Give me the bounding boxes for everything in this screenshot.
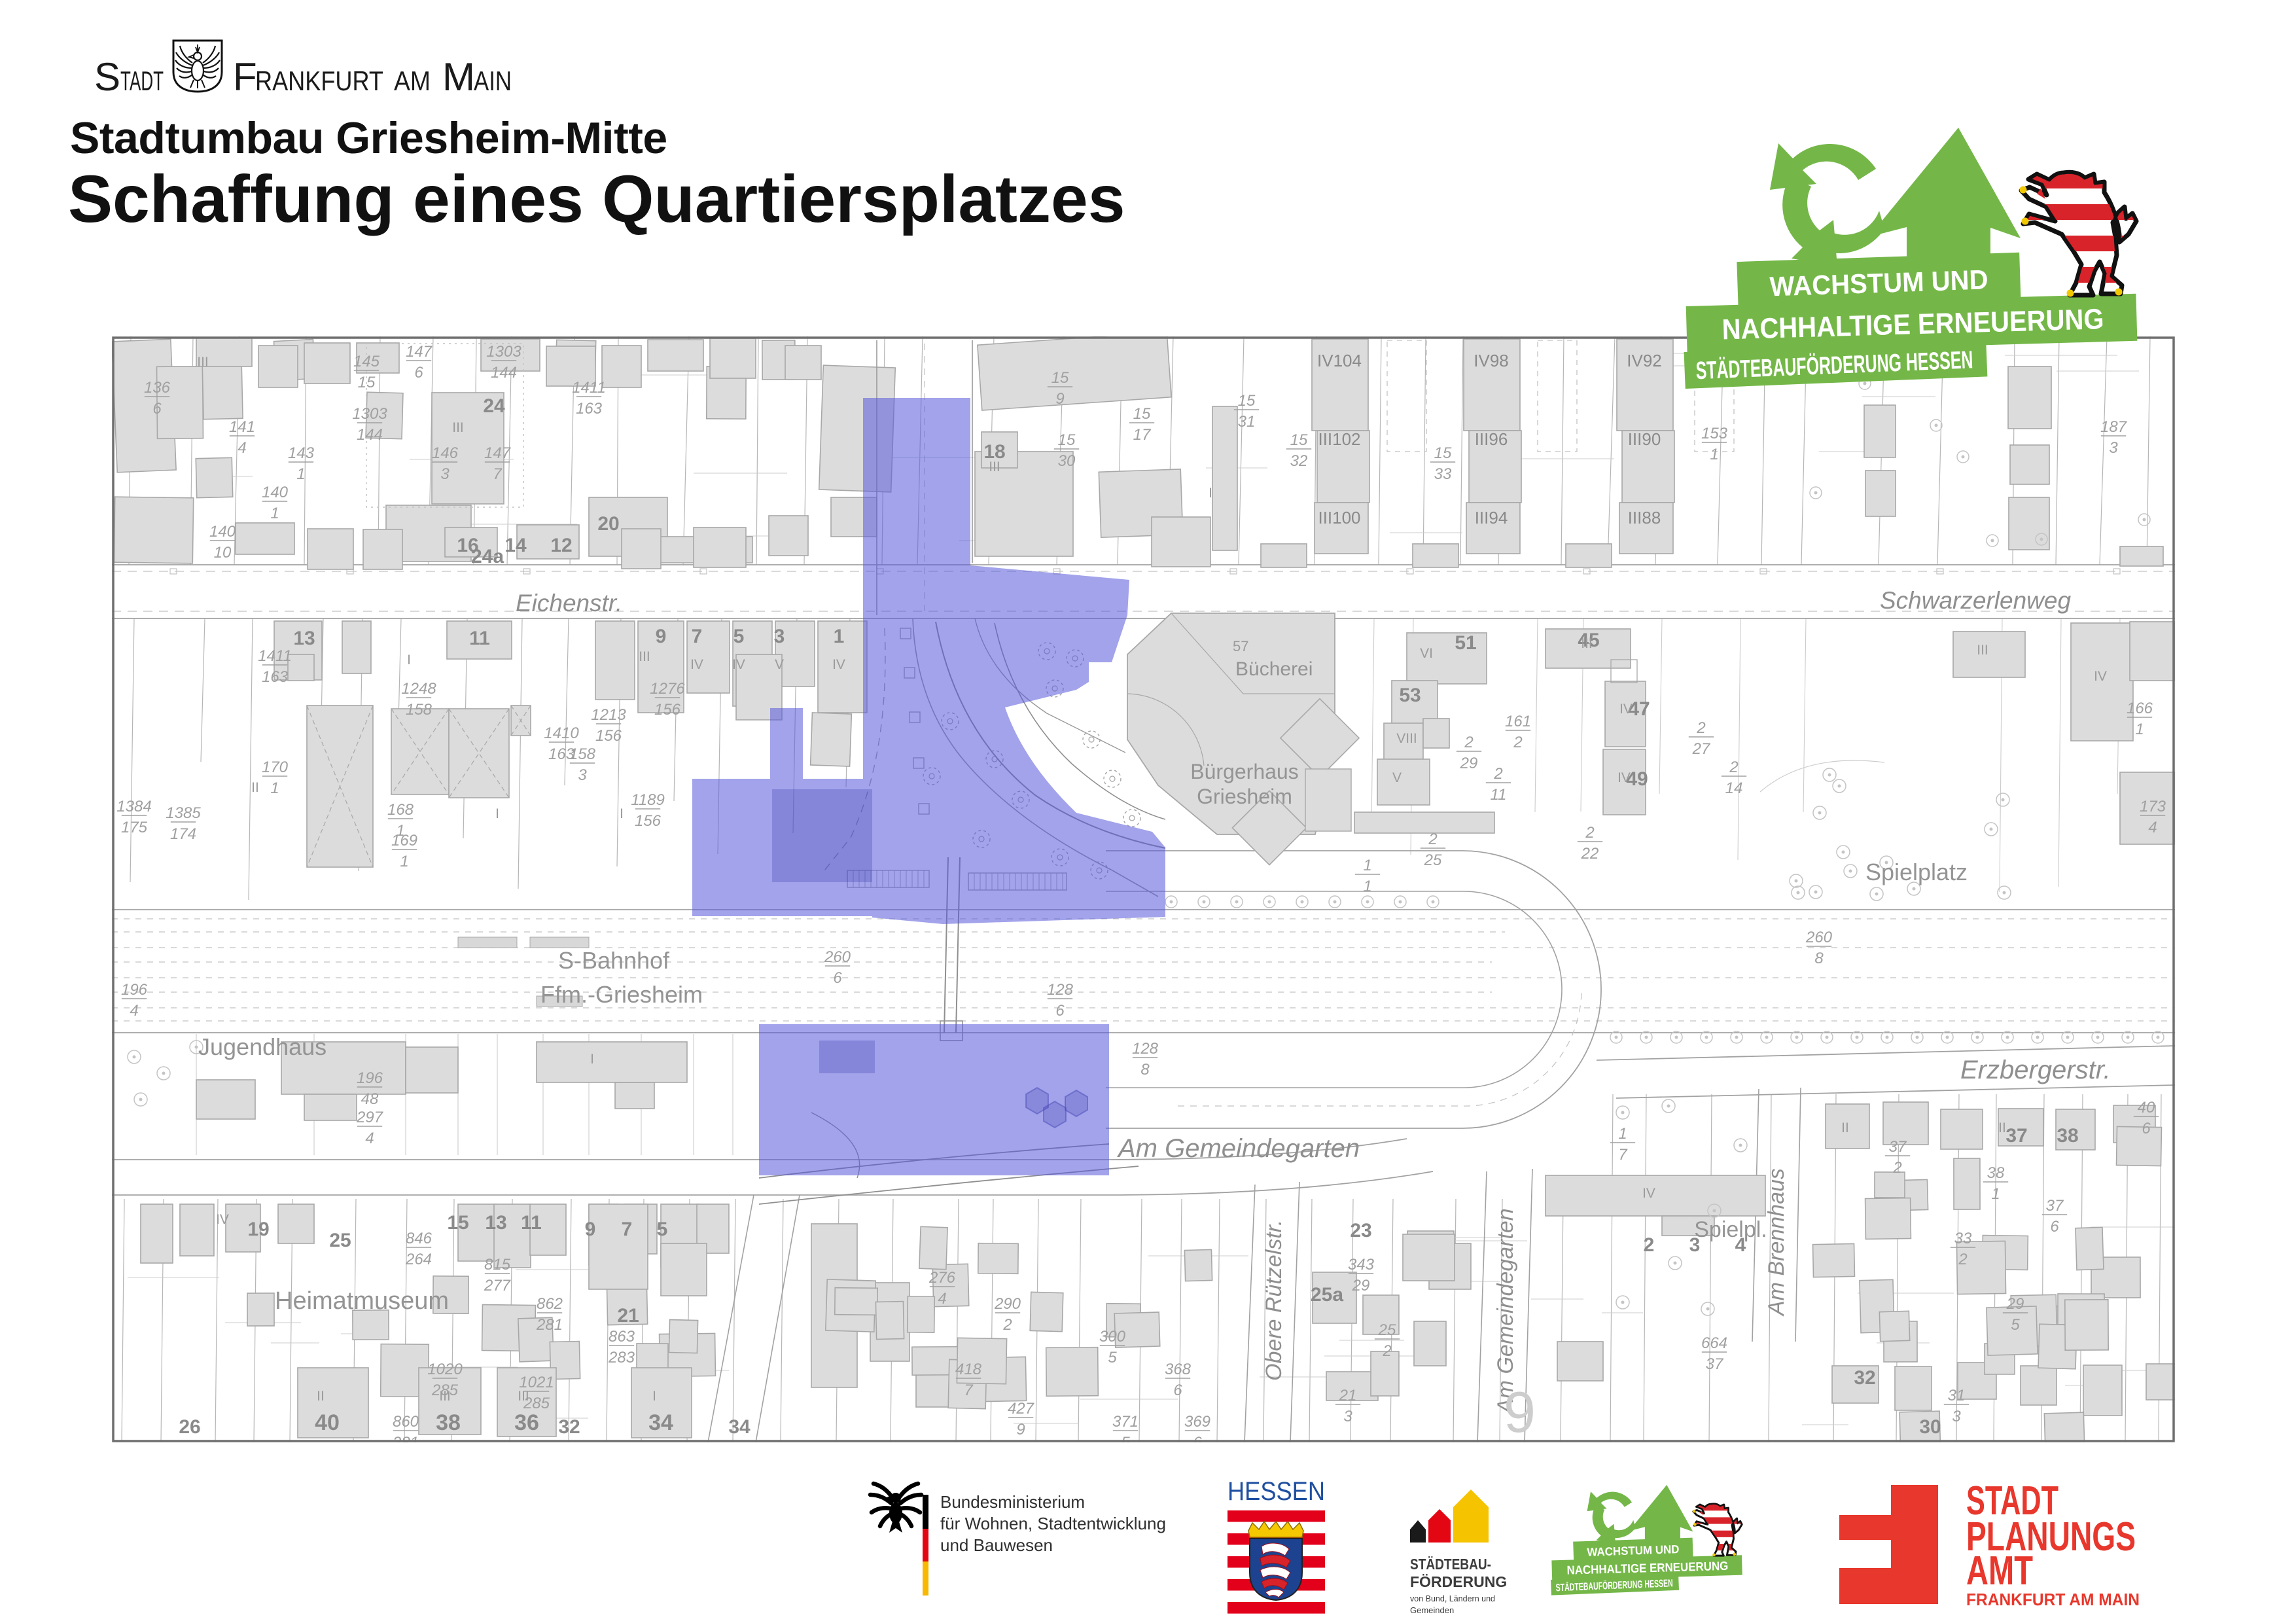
svg-text:15: 15: [1290, 431, 1308, 449]
svg-text:13: 13: [485, 1212, 506, 1234]
svg-text:15: 15: [358, 374, 376, 391]
svg-text:FÖRDERUNG: FÖRDERUNG: [1410, 1573, 1507, 1590]
svg-text:III: III: [639, 649, 650, 664]
svg-text:143: 143: [288, 444, 315, 462]
svg-text:IV: IV: [1617, 770, 1631, 785]
svg-text:2: 2: [1382, 1342, 1391, 1360]
svg-text:38: 38: [1987, 1164, 2005, 1182]
svg-text:3: 3: [1343, 1408, 1352, 1425]
svg-text:von Bund, Ländern und: von Bund, Ländern und: [1410, 1594, 1495, 1603]
svg-text:V: V: [775, 657, 784, 672]
svg-text:für Wohnen, Stadtentwicklung: für Wohnen, Stadtentwicklung: [940, 1514, 1166, 1533]
svg-text:22: 22: [1581, 845, 1599, 863]
svg-text:II: II: [317, 1389, 325, 1404]
svg-text:300: 300: [1099, 1328, 1126, 1346]
svg-text:7: 7: [964, 1382, 974, 1399]
svg-text:IV104: IV104: [1317, 351, 1362, 370]
svg-text:2: 2: [1428, 830, 1437, 848]
svg-text:IV: IV: [2094, 669, 2107, 684]
svg-text:RANKFURT: RANKFURT: [255, 65, 383, 96]
svg-text:HESSEN: HESSEN: [1227, 1477, 1325, 1506]
svg-text:3: 3: [440, 465, 450, 483]
svg-text:14: 14: [1725, 779, 1743, 797]
svg-text:3: 3: [1952, 1408, 1961, 1425]
svg-text:7: 7: [622, 1219, 633, 1240]
svg-text:Jugendhaus: Jugendhaus: [198, 1033, 327, 1060]
svg-text:IV92: IV92: [1627, 351, 1662, 370]
svg-text:281: 281: [536, 1316, 563, 1334]
svg-text:9: 9: [585, 1219, 596, 1240]
svg-text:1: 1: [834, 626, 845, 647]
svg-text:153: 153: [1701, 425, 1728, 442]
svg-text:5: 5: [733, 626, 745, 647]
svg-text:156: 156: [595, 727, 622, 745]
svg-text:166: 166: [2127, 700, 2153, 717]
svg-text:15: 15: [1133, 405, 1151, 423]
svg-text:15: 15: [1238, 392, 1256, 410]
svg-text:26: 26: [179, 1416, 200, 1438]
svg-text:32: 32: [558, 1416, 580, 1438]
svg-text:23: 23: [1350, 1220, 1371, 1241]
svg-text:196: 196: [121, 981, 148, 999]
svg-text:260: 260: [824, 948, 851, 966]
svg-text:290: 290: [994, 1295, 1021, 1313]
svg-text:2: 2: [1892, 1159, 1901, 1177]
svg-text:III: III: [452, 420, 464, 435]
svg-text:277: 277: [484, 1277, 512, 1294]
svg-text:1303: 1303: [486, 343, 521, 361]
svg-text:I: I: [1209, 486, 1212, 501]
svg-text:3: 3: [774, 626, 785, 647]
svg-text:TADT: TADT: [120, 65, 164, 96]
svg-text:3: 3: [578, 766, 587, 784]
svg-text:260: 260: [1805, 929, 1833, 946]
svg-text:Spielpl.: Spielpl.: [1694, 1217, 1767, 1242]
svg-text:169: 169: [391, 832, 417, 849]
svg-text:1384: 1384: [116, 798, 151, 815]
svg-text:145: 145: [353, 353, 380, 370]
svg-text:31: 31: [1238, 413, 1256, 431]
svg-text:196: 196: [357, 1069, 383, 1087]
svg-text:10: 10: [214, 544, 232, 562]
svg-text:140: 140: [262, 484, 289, 501]
svg-text:4: 4: [238, 439, 246, 457]
svg-text:1: 1: [1991, 1185, 2000, 1203]
svg-text:146: 146: [432, 444, 459, 462]
svg-text:136: 136: [144, 379, 171, 397]
svg-text:37: 37: [2046, 1197, 2064, 1215]
svg-text:II: II: [251, 780, 259, 795]
svg-text:140: 140: [209, 523, 236, 541]
svg-text:57: 57: [1233, 638, 1248, 654]
svg-text:2: 2: [1696, 719, 1705, 737]
svg-text:IV: IV: [690, 657, 703, 672]
svg-text:4: 4: [2148, 819, 2157, 836]
svg-text:297: 297: [356, 1109, 384, 1126]
svg-text:5: 5: [1108, 1349, 1117, 1366]
svg-text:5: 5: [657, 1219, 668, 1240]
svg-text:11: 11: [469, 628, 490, 649]
svg-text:283: 283: [608, 1349, 635, 1366]
svg-text:M: M: [442, 55, 475, 99]
svg-text:30: 30: [1919, 1416, 1941, 1438]
svg-text:25: 25: [1424, 851, 1442, 869]
svg-text:Am Gemeindegarten: Am Gemeindegarten: [1117, 1134, 1360, 1163]
svg-text:175: 175: [121, 819, 148, 836]
svg-text:3: 3: [2109, 439, 2118, 457]
svg-text:33: 33: [1954, 1230, 1972, 1247]
svg-text:48: 48: [361, 1090, 379, 1108]
svg-text:IV: IV: [1619, 702, 1633, 717]
svg-text:6: 6: [2142, 1120, 2151, 1137]
svg-text:Obere Rützelstr.: Obere Rützelstr.: [1262, 1220, 1286, 1381]
svg-text:264: 264: [405, 1251, 432, 1268]
svg-text:158: 158: [569, 745, 596, 763]
svg-text:III: III: [197, 355, 209, 370]
svg-text:8: 8: [1814, 950, 1824, 967]
svg-text:1411: 1411: [572, 379, 606, 397]
svg-text:F: F: [233, 55, 257, 99]
svg-text:III: III: [439, 1389, 451, 1404]
svg-text:S: S: [94, 55, 120, 99]
svg-text:30: 30: [1058, 452, 1076, 470]
svg-text:6: 6: [1055, 1002, 1065, 1020]
svg-text:1: 1: [2135, 721, 2144, 738]
svg-text:Spielplatz: Spielplatz: [1865, 859, 1968, 885]
svg-text:IV: IV: [1642, 1186, 1655, 1201]
svg-text:AMT: AMT: [1966, 1548, 2033, 1594]
svg-text:2: 2: [1958, 1251, 1967, 1268]
svg-text:1: 1: [400, 853, 408, 870]
svg-text:und Bauwesen: und Bauwesen: [940, 1535, 1053, 1555]
svg-text:1: 1: [1363, 878, 1371, 895]
svg-text:IV98: IV98: [1474, 351, 1509, 370]
svg-text:Gemeinden: Gemeinden: [1410, 1605, 1454, 1615]
svg-text:1303: 1303: [352, 405, 387, 423]
svg-text:AIN: AIN: [474, 65, 512, 96]
svg-text:Bürgerhaus: Bürgerhaus: [1190, 760, 1298, 783]
svg-text:Bücherei: Bücherei: [1235, 658, 1313, 680]
svg-text:III90: III90: [1628, 429, 1661, 449]
svg-text:163: 163: [576, 400, 603, 418]
svg-text:156: 156: [635, 812, 662, 830]
svg-text:8: 8: [1140, 1061, 1150, 1079]
svg-text:174: 174: [170, 825, 196, 843]
svg-text:2: 2: [1644, 1234, 1655, 1256]
svg-text:IV: IV: [216, 1212, 229, 1227]
svg-text:32: 32: [1290, 452, 1308, 470]
svg-text:2: 2: [1585, 824, 1594, 842]
svg-text:11: 11: [521, 1212, 542, 1234]
svg-text:II: II: [1841, 1120, 1849, 1135]
svg-text:1: 1: [1710, 446, 1718, 463]
svg-text:S-Bahnhof: S-Bahnhof: [558, 947, 670, 974]
svg-text:369: 369: [1184, 1413, 1210, 1431]
svg-text:14: 14: [504, 535, 527, 556]
svg-text:163: 163: [262, 668, 289, 686]
svg-text:FRANKFURT AM MAIN: FRANKFURT AM MAIN: [1966, 1590, 2140, 1609]
svg-text:6: 6: [833, 969, 842, 987]
svg-text:141: 141: [229, 418, 255, 436]
svg-text:33: 33: [1434, 465, 1452, 483]
svg-text:9: 9: [1504, 1380, 1536, 1442]
svg-text:V: V: [1392, 770, 1402, 785]
svg-text:1: 1: [270, 779, 279, 797]
svg-text:173: 173: [2140, 798, 2166, 815]
svg-text:25: 25: [329, 1230, 351, 1251]
svg-text:Erzbergerstr.: Erzbergerstr.: [1960, 1056, 2111, 1084]
svg-text:Heimatmuseum: Heimatmuseum: [275, 1287, 449, 1315]
svg-text:13: 13: [293, 628, 315, 649]
svg-text:IV: IV: [732, 657, 745, 672]
svg-text:III: III: [989, 459, 1000, 474]
svg-text:147: 147: [406, 343, 433, 361]
svg-text:144: 144: [491, 364, 517, 382]
svg-text:7: 7: [1618, 1146, 1628, 1164]
svg-text:40: 40: [2138, 1099, 2155, 1116]
svg-text:664: 664: [1701, 1334, 1727, 1352]
svg-text:27: 27: [1692, 740, 1711, 758]
svg-text:29: 29: [2006, 1295, 2024, 1313]
svg-text:40: 40: [315, 1410, 340, 1435]
svg-text:VIII: VIII: [1396, 731, 1417, 746]
svg-text:Am Brennhaus: Am Brennhaus: [1764, 1168, 1789, 1317]
svg-text:1276: 1276: [650, 680, 685, 698]
svg-text:III94: III94: [1475, 508, 1508, 527]
svg-text:III: III: [1581, 636, 1593, 651]
svg-text:4: 4: [130, 1002, 138, 1020]
svg-text:1410: 1410: [544, 724, 579, 742]
svg-text:I: I: [590, 1052, 594, 1067]
svg-text:III: III: [1977, 643, 1988, 658]
svg-text:4: 4: [365, 1130, 374, 1147]
svg-text:38: 38: [436, 1410, 461, 1435]
svg-text:37: 37: [2005, 1125, 2027, 1147]
svg-text:6: 6: [414, 364, 423, 382]
svg-text:7: 7: [692, 626, 703, 647]
svg-text:2: 2: [1464, 734, 1473, 751]
svg-text:34: 34: [728, 1416, 751, 1438]
svg-text:34: 34: [648, 1410, 673, 1435]
svg-text:2: 2: [1729, 758, 1738, 776]
svg-text:Ffm.-Griesheim: Ffm.-Griesheim: [540, 981, 703, 1008]
svg-text:1: 1: [270, 505, 279, 522]
svg-text:15: 15: [1058, 431, 1076, 449]
svg-text:24: 24: [483, 395, 505, 417]
svg-text:51: 51: [1455, 632, 1476, 654]
svg-text:16: 16: [457, 535, 478, 556]
svg-text:147: 147: [484, 444, 512, 462]
svg-text:32: 32: [1854, 1367, 1875, 1389]
svg-text:156: 156: [654, 701, 681, 719]
svg-text:11: 11: [1491, 786, 1507, 804]
svg-text:427: 427: [1008, 1400, 1035, 1418]
svg-text:II: II: [1998, 1120, 2006, 1135]
svg-text:6: 6: [1173, 1382, 1182, 1399]
svg-text:I: I: [495, 806, 499, 821]
svg-text:343: 343: [1348, 1256, 1375, 1274]
svg-text:4: 4: [938, 1290, 946, 1308]
svg-text:860: 860: [393, 1413, 419, 1431]
svg-text:37: 37: [1706, 1355, 1724, 1373]
svg-text:276: 276: [928, 1269, 956, 1287]
svg-text:2: 2: [1493, 765, 1502, 783]
svg-text:53: 53: [1399, 685, 1421, 706]
svg-text:III96: III96: [1475, 429, 1508, 449]
svg-text:1020: 1020: [427, 1361, 463, 1378]
svg-text:862: 862: [537, 1295, 563, 1313]
svg-text:158: 158: [406, 701, 433, 719]
svg-text:1: 1: [296, 465, 305, 483]
svg-text:368: 368: [1165, 1361, 1192, 1378]
svg-text:29: 29: [1352, 1277, 1370, 1294]
svg-text:I: I: [620, 806, 624, 821]
svg-text:21: 21: [1339, 1387, 1357, 1404]
svg-text:AM: AM: [394, 65, 431, 96]
svg-text:Griesheim: Griesheim: [1197, 785, 1292, 808]
svg-text:371: 371: [1112, 1413, 1139, 1431]
svg-text:170: 170: [262, 758, 289, 776]
svg-text:187: 187: [2100, 418, 2128, 436]
svg-text:12: 12: [550, 535, 572, 556]
svg-text:9: 9: [1016, 1421, 1025, 1438]
svg-text:STÄDTEBAU-: STÄDTEBAU-: [1410, 1556, 1491, 1573]
svg-text:17: 17: [1133, 426, 1152, 444]
svg-text:III100: III100: [1318, 508, 1360, 527]
svg-text:128: 128: [1047, 981, 1074, 999]
svg-text:144: 144: [357, 426, 383, 444]
svg-text:863: 863: [609, 1328, 635, 1346]
svg-text:9: 9: [1055, 390, 1064, 408]
svg-text:5: 5: [2011, 1316, 2020, 1334]
svg-text:31: 31: [1948, 1387, 1966, 1404]
svg-text:1385: 1385: [166, 804, 201, 822]
svg-text:III88: III88: [1628, 508, 1661, 527]
svg-text:36: 36: [514, 1410, 539, 1435]
svg-text:38: 38: [2057, 1125, 2078, 1147]
svg-text:9: 9: [656, 626, 667, 647]
svg-text:37: 37: [1889, 1138, 1907, 1156]
svg-text:418: 418: [955, 1361, 982, 1378]
svg-text:IV: IV: [832, 657, 845, 672]
svg-text:25a: 25a: [1311, 1284, 1343, 1306]
svg-text:15: 15: [1434, 444, 1452, 462]
svg-text:19: 19: [247, 1219, 269, 1240]
svg-text:20: 20: [597, 513, 619, 535]
svg-text:VI: VI: [1420, 646, 1433, 661]
svg-text:1248: 1248: [401, 680, 436, 698]
svg-text:2: 2: [1002, 1316, 1012, 1334]
svg-text:168: 168: [387, 801, 414, 819]
svg-text:Bundesministerium: Bundesministerium: [940, 1492, 1085, 1512]
svg-text:1213: 1213: [591, 706, 626, 724]
svg-text:I: I: [652, 1389, 656, 1404]
svg-text:7: 7: [493, 465, 503, 483]
svg-text:15: 15: [1051, 369, 1069, 387]
svg-text:29: 29: [1460, 755, 1478, 772]
svg-text:Schwarzerlenweg: Schwarzerlenweg: [1880, 587, 2071, 614]
svg-text:2: 2: [1513, 734, 1522, 751]
svg-text:25: 25: [1378, 1321, 1396, 1339]
svg-text:III102: III102: [1318, 429, 1360, 449]
svg-text:128: 128: [1132, 1040, 1159, 1058]
svg-text:1: 1: [1363, 857, 1371, 874]
svg-text:1: 1: [1618, 1125, 1627, 1143]
svg-text:21: 21: [617, 1305, 639, 1327]
svg-text:III: III: [518, 1389, 529, 1404]
svg-text:15: 15: [447, 1212, 468, 1234]
svg-text:846: 846: [406, 1230, 433, 1247]
svg-text:Eichenstr.: Eichenstr.: [516, 590, 622, 616]
svg-text:6: 6: [152, 400, 162, 418]
svg-text:815: 815: [484, 1256, 511, 1274]
svg-text:1189: 1189: [631, 791, 665, 809]
svg-text:I: I: [407, 652, 411, 668]
svg-text:161: 161: [1505, 713, 1531, 730]
svg-text:6: 6: [2050, 1218, 2059, 1236]
svg-text:1411: 1411: [258, 647, 292, 665]
